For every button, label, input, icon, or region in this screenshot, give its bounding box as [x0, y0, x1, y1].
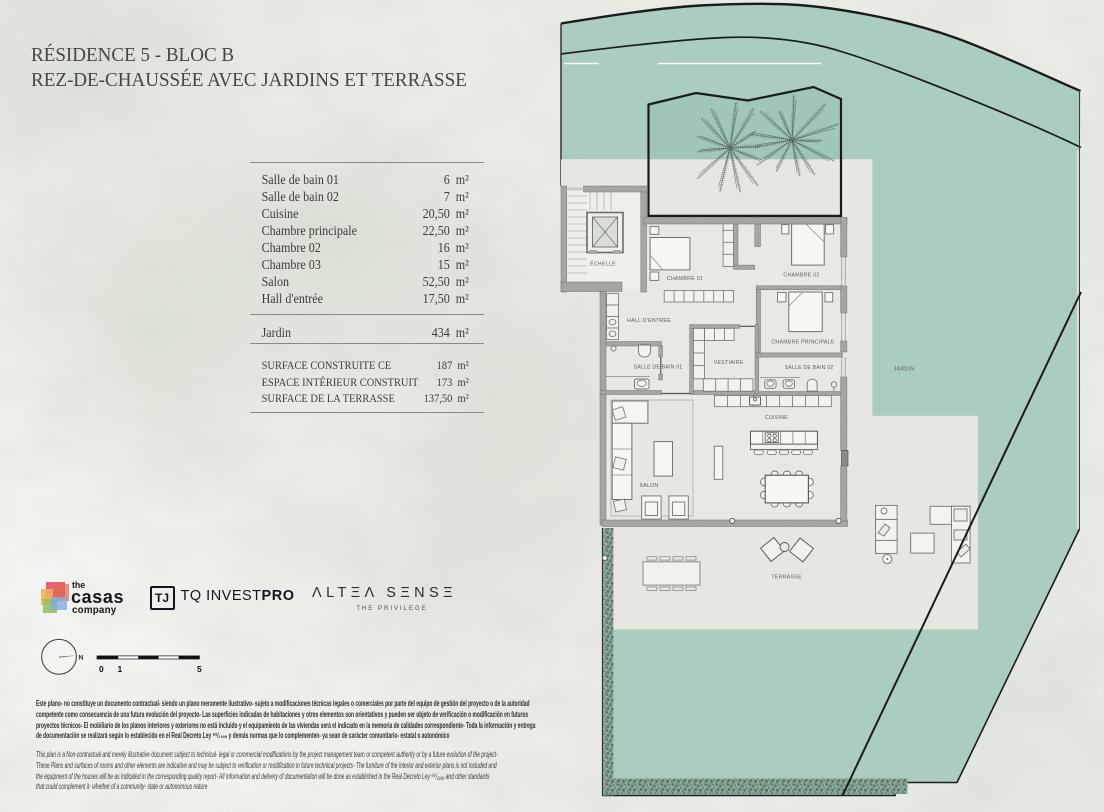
svg-text:ÉCHELLE: ÉCHELLE [590, 261, 616, 268]
svg-text:0: 0 [99, 664, 104, 674]
svg-text:5: 5 [197, 664, 202, 674]
svg-text:SALON: SALON [639, 483, 658, 489]
svg-text:HALL D'ENTRÉE: HALL D'ENTRÉE [627, 317, 671, 324]
svg-text:N: N [79, 655, 84, 662]
svg-text:CHAMBRE 01: CHAMBRE 01 [667, 276, 703, 282]
svg-text:TERRASSE: TERRASSE [771, 575, 802, 581]
svg-text:SALLE DE BAIN 01: SALLE DE BAIN 01 [634, 365, 683, 371]
svg-text:1: 1 [118, 664, 123, 674]
svg-text:SALLE DE BAIN 02: SALLE DE BAIN 02 [785, 365, 834, 371]
svg-text:CHAMBRE 02: CHAMBRE 02 [783, 273, 819, 279]
svg-text:JARDIN: JARDIN [894, 367, 915, 373]
svg-text:CUISINE: CUISINE [765, 415, 788, 421]
svg-text:CHAMBRE PRINCIPALE: CHAMBRE PRINCIPALE [771, 340, 834, 346]
svg-text:VESTIAIRE: VESTIAIRE [714, 360, 744, 366]
